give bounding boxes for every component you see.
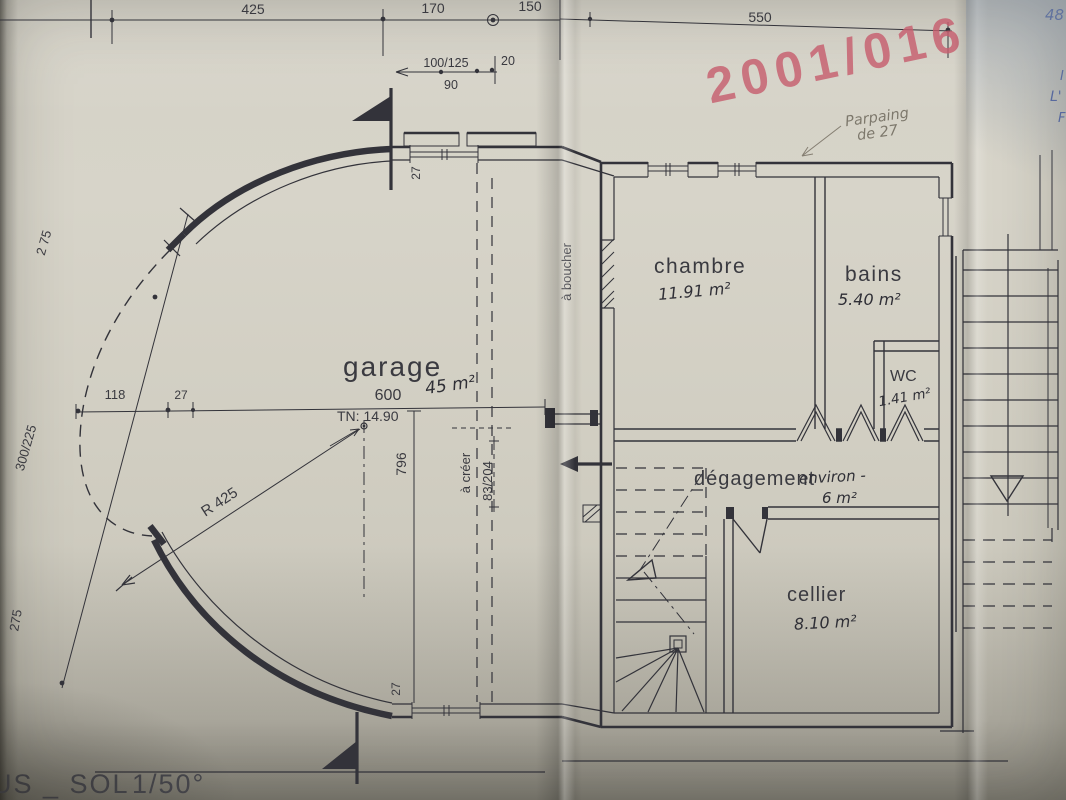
dim-lintel-100-125: 100/125 bbox=[423, 56, 468, 70]
annotation-tn-level: TN: 14.90 bbox=[337, 408, 399, 424]
room-degagement-name: dégagement bbox=[694, 468, 815, 490]
plan-scale: 1/50° bbox=[132, 769, 205, 799]
dim-top-550: 550 bbox=[748, 9, 772, 25]
interior-stairs bbox=[616, 468, 706, 713]
dim-lintel-20: 20 bbox=[501, 54, 515, 68]
garage-top-wall bbox=[392, 133, 614, 176]
corner-blue-fragment-1: I bbox=[1060, 69, 1064, 84]
room-bains-area: 5.40 m² bbox=[838, 290, 901, 309]
corner-blue-fragment-2: L' bbox=[1050, 89, 1062, 105]
room-degagement-qualifier: environ - bbox=[799, 466, 867, 487]
room-cellier-area: 8.10 m² bbox=[794, 611, 858, 633]
house-outer-walls bbox=[601, 162, 952, 727]
dim-jamb-top-27: 27 bbox=[409, 166, 423, 180]
room-cellier-name: cellier bbox=[787, 584, 846, 606]
corner-blue-fragment-3: F bbox=[1058, 111, 1066, 126]
annotation-a-creer-dim: 83/204 bbox=[480, 461, 495, 501]
dim-left-300-225: 300/225 bbox=[12, 423, 39, 472]
garage-curved-wall bbox=[80, 149, 392, 716]
dim-garage-796: 796 bbox=[393, 452, 409, 476]
dim-top-425: 425 bbox=[241, 1, 265, 17]
dim-left-275-lower: 275 bbox=[6, 608, 25, 632]
garage-width-dimension bbox=[76, 399, 545, 419]
dim-garage-600: 600 bbox=[375, 387, 402, 404]
floor-plan-drawing: 425 170 150 550 100/125 90 20 118 27 600… bbox=[0, 0, 1066, 800]
dim-left-275-upper: 2 75 bbox=[33, 229, 54, 257]
annotation-a-boucher: à boucher bbox=[559, 242, 574, 300]
beam-dashed-lines bbox=[477, 163, 492, 702]
dim-garage-27: 27 bbox=[174, 388, 188, 402]
room-bains-name: bains bbox=[845, 263, 903, 286]
room-garage-name: garage bbox=[343, 351, 442, 382]
exterior-stairs bbox=[940, 150, 1058, 733]
registration-stamp: 2001/016 bbox=[701, 4, 971, 114]
room-wc-name: WC bbox=[890, 368, 917, 385]
axis-and-radius bbox=[116, 420, 367, 600]
annotation-radius: R 425 bbox=[198, 484, 241, 520]
room-chambre-area: 11.91 m² bbox=[657, 279, 732, 304]
corner-handwritten-note: 48 bbox=[1045, 6, 1064, 24]
garage-depth-dimension bbox=[407, 411, 421, 703]
ground-lines bbox=[95, 761, 1008, 772]
dim-garage-118: 118 bbox=[105, 387, 126, 402]
dim-jamb-bottom-27: 27 bbox=[389, 682, 403, 696]
room-chambre-name: chambre bbox=[654, 255, 746, 278]
section-cut-flags bbox=[322, 88, 391, 784]
pencil-arrow bbox=[802, 126, 841, 156]
plan-title: US _ SOL bbox=[0, 769, 130, 799]
dim-lintel-90: 90 bbox=[444, 78, 458, 92]
garage-bottom-wall bbox=[392, 702, 614, 727]
dim-top-170: 170 bbox=[421, 0, 445, 16]
room-degagement-area: 6 m² bbox=[822, 489, 857, 507]
room-labels: garage 45 m² chambre 11.91 m² bains 5.40… bbox=[343, 255, 933, 634]
scanned-floor-plan-photo: 425 170 150 550 100/125 90 20 118 27 600… bbox=[0, 0, 1066, 800]
annotation-a-creer: à créer bbox=[458, 452, 473, 493]
wall-to-brick-up-hatch bbox=[601, 239, 614, 308]
dim-top-150: 150 bbox=[518, 0, 542, 14]
